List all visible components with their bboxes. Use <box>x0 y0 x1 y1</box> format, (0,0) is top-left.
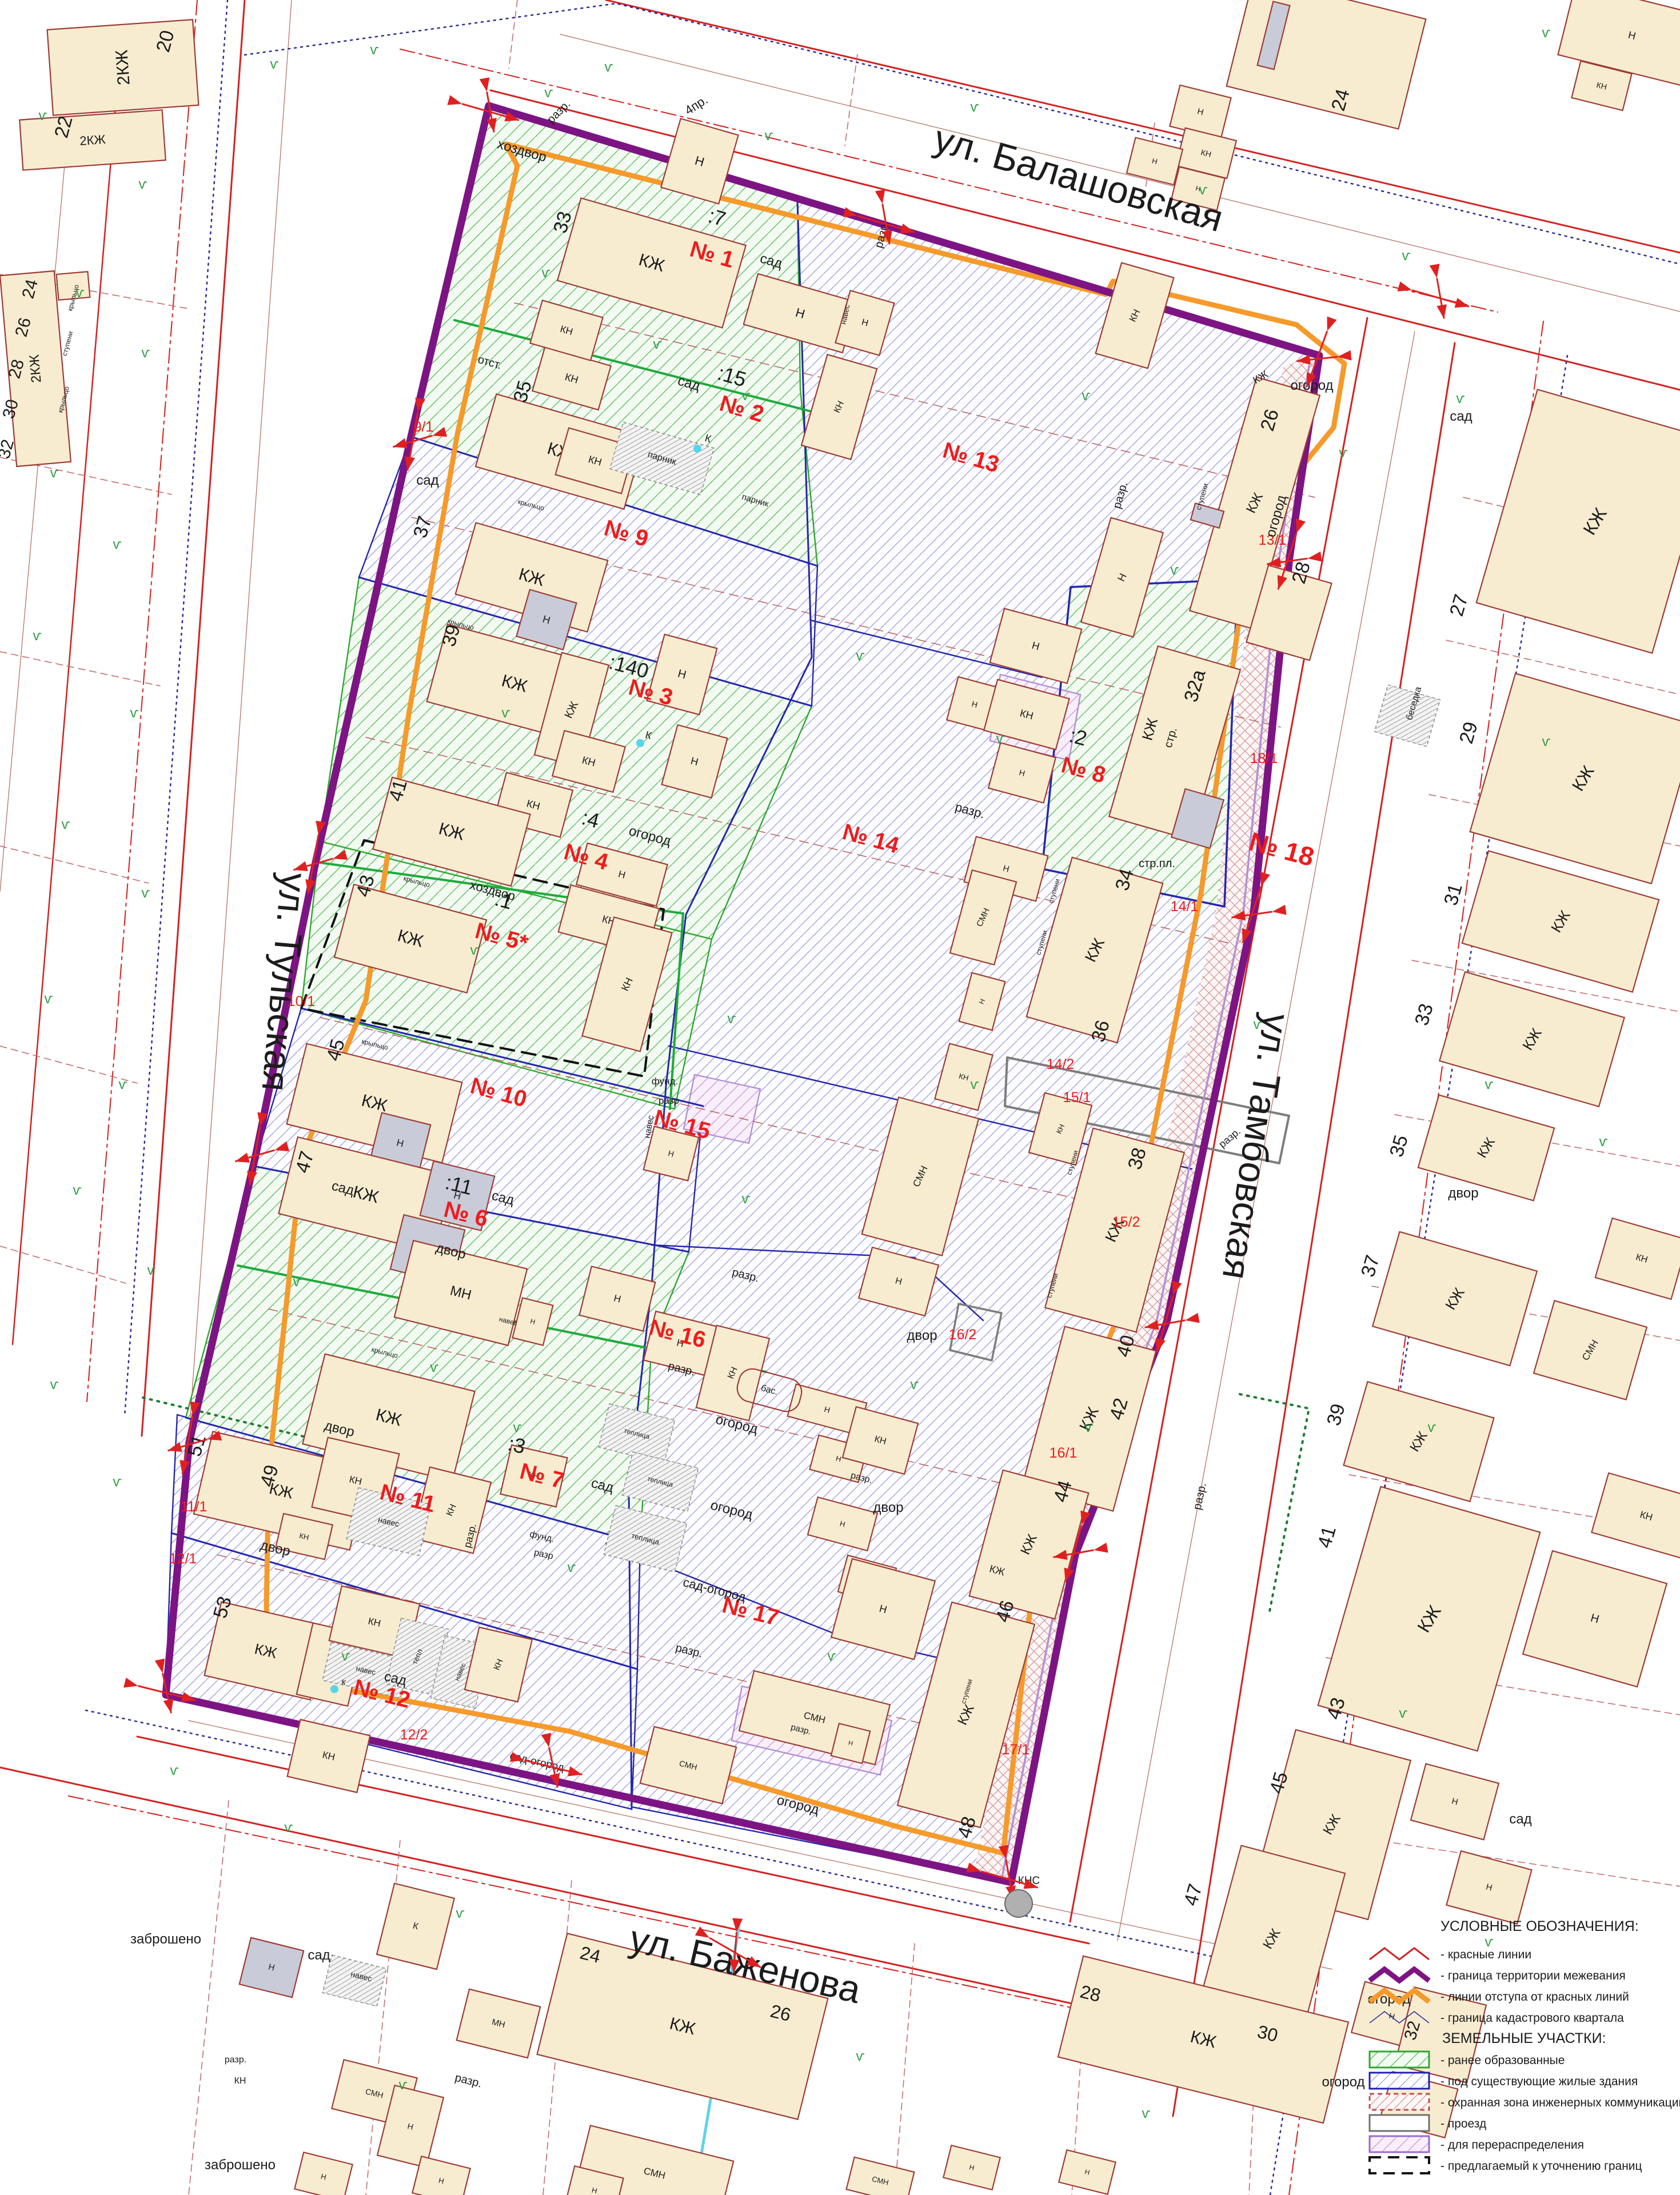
boundary-point: 17/1 <box>1002 1742 1030 1758</box>
boundary-point: 12/1 <box>169 1551 197 1567</box>
legend-item: - предлагаемый к уточнению границ <box>1370 2157 1642 2173</box>
boundary-point: 14/1 <box>1171 899 1199 915</box>
boundary-point: 15/1 <box>1063 1089 1091 1106</box>
well-icon <box>636 739 644 747</box>
tree-icon: ѵ <box>141 885 150 901</box>
legend-label: - для перераспределения <box>1440 2138 1584 2152</box>
boundary-point: 16/1 <box>1049 1445 1078 1461</box>
tree-icon: ѵ <box>856 2049 864 2064</box>
tree-icon: ѵ <box>970 99 979 115</box>
legend-swatch <box>1370 2052 1429 2068</box>
tree-icon: ѵ <box>970 1077 979 1092</box>
tree-icon: ѵ <box>50 1377 58 1392</box>
legend-item: - для перераспределения <box>1370 2136 1584 2152</box>
area-label: сад <box>416 473 438 488</box>
tree-icon: ѵ <box>856 648 864 664</box>
legend-label: - под существующие жилые здания <box>1440 2075 1638 2088</box>
tree-icon: ѵ <box>827 1649 836 1664</box>
tree-icon: ѵ <box>1253 1017 1262 1032</box>
tree-icon: ѵ <box>764 128 773 143</box>
area-label: разр. <box>225 2055 246 2065</box>
legend-label: - линии отступа от красных линий <box>1440 1990 1629 2004</box>
tree-icon: ѵ <box>1542 25 1550 41</box>
legend-swatch <box>1370 2115 1429 2131</box>
tree-icon: ѵ <box>38 108 47 123</box>
area-label: двор <box>1448 1186 1478 1201</box>
legend-item: - под существующие жилые здания <box>1370 2073 1638 2089</box>
area-label: огород <box>1322 2074 1364 2090</box>
tree-icon: ѵ <box>113 537 121 552</box>
tree-icon: ѵ <box>1542 734 1550 749</box>
kns-icon <box>1005 1890 1032 1917</box>
tree-icon: ѵ <box>113 1474 121 1490</box>
tree-icon: ѵ <box>270 57 278 72</box>
tree-icon: ѵ <box>293 1274 301 1290</box>
tree-icon: ѵ <box>130 705 138 721</box>
tree-icon: ѵ <box>44 991 53 1007</box>
building-label: 2КЖ <box>112 49 133 86</box>
tree-icon: ѵ <box>398 2077 407 2093</box>
tree-icon: ѵ <box>1082 388 1090 404</box>
tree-icon: ѵ <box>653 337 661 352</box>
legend-label: - охранная зона инженерных коммуникаций <box>1440 2096 1680 2109</box>
tree-icon: ѵ <box>741 388 750 404</box>
legend-swatch <box>1370 2094 1429 2110</box>
tree-icon: ѵ <box>141 345 150 361</box>
area-label: огород <box>1290 378 1333 393</box>
legend-item: ЗЕМЕЛЬНЫЕ УЧАСТКИ: <box>1442 2030 1606 2046</box>
legend-swatch <box>1370 2073 1429 2089</box>
area-label: заброшено <box>130 1931 201 1947</box>
tree-icon: ѵ <box>61 817 70 832</box>
tree-icon: ѵ <box>1170 562 1179 578</box>
legend-label: - предлагаемый к уточнению границ <box>1440 2160 1642 2173</box>
boundary-point: 11/1 <box>181 1499 207 1515</box>
legend-item: - проезд <box>1370 2115 1486 2131</box>
tree-icon: ѵ <box>604 59 613 75</box>
area-label: сад <box>308 1947 330 1963</box>
area-label: двор <box>873 1500 903 1515</box>
legend-label: ЗЕМЕЛЬНЫЕ УЧАСТКИ: <box>1442 2030 1606 2046</box>
tree-icon: ѵ <box>470 943 478 958</box>
tree-icon: ѵ <box>1339 445 1347 461</box>
tree-icon: ѵ <box>1399 1706 1407 1721</box>
tree-icon: ѵ <box>996 731 1004 747</box>
boundary-point: 18/1 <box>1250 751 1278 767</box>
area-label: сад <box>1509 1811 1531 1827</box>
legend-label: - проезд <box>1440 2117 1486 2130</box>
legend-label: - ранее образованные <box>1440 2054 1565 2067</box>
tree-icon: ѵ <box>1456 391 1464 406</box>
tree-icon: ѵ <box>1199 182 1207 198</box>
tree-icon: ѵ <box>33 628 41 644</box>
tree-icon: ѵ <box>910 1377 919 1392</box>
tree-icon: ѵ <box>727 1011 736 1027</box>
cadastral-map: 2КЖ2КЖ2КЖКЖНННКНКЖКНКНКНпарникКЖНКЖКЖКНН… <box>0 0 1680 2195</box>
legend-swatch <box>1370 2157 1429 2173</box>
boundary-point: 14/2 <box>1047 1056 1075 1072</box>
boundary-point: 12/2 <box>400 1727 428 1743</box>
tree-icon: ѵ <box>341 1649 350 1664</box>
area-label: заброшено <box>205 2157 276 2173</box>
legend-swatch <box>1370 2136 1429 2152</box>
tree-icon: ѵ <box>544 85 553 101</box>
area-label: сад <box>1450 409 1472 424</box>
legend-title: УСЛОВНЫЕ ОБОЗНАЧЕНИЯ: <box>1440 1918 1639 1934</box>
tree-icon: ѵ <box>1599 1134 1607 1150</box>
area-label: стр.пл. <box>1139 857 1175 870</box>
tree-icon: ѵ <box>501 705 510 721</box>
tree-icon: ѵ <box>284 1820 293 1835</box>
area-label: фунд. <box>652 1076 678 1087</box>
well-icon <box>693 445 701 453</box>
building-label: 2КЖ <box>26 354 44 384</box>
tree-icon: ѵ <box>1485 1077 1493 1092</box>
area-label: разр <box>659 1095 679 1106</box>
area-label: двор <box>907 1328 937 1343</box>
tree-icon: ѵ <box>1142 2106 1150 2121</box>
boundary-point: 15/2 <box>1112 1214 1140 1230</box>
tree-icon: ѵ <box>170 1763 178 1778</box>
tree-icon: ѵ <box>430 1360 438 1375</box>
tree-icon: ѵ <box>513 1420 521 1435</box>
tree-icon: ѵ <box>1402 248 1410 264</box>
legend-label: - граница кадастрового квартала <box>1440 2012 1624 2025</box>
legend-item: - ранее образованные <box>1370 2052 1565 2068</box>
tree-icon: ѵ <box>741 1191 750 1207</box>
tree-icon: ѵ <box>456 1906 464 1921</box>
tree-icon: ѵ <box>370 42 378 58</box>
tree-icon: ѵ <box>541 265 550 281</box>
legend-label: - граница территории межевания <box>1440 1969 1626 1982</box>
tree-icon: ѵ <box>1427 1420 1436 1435</box>
tree-icon: ѵ <box>1485 1934 1493 1950</box>
tree-icon: ѵ <box>1084 1420 1093 1435</box>
tree-icon: ѵ <box>147 1263 155 1278</box>
well-icon <box>330 1685 338 1693</box>
tree-icon: ѵ <box>567 1560 576 1575</box>
area-label: КН <box>234 2076 246 2086</box>
tree-icon: ѵ <box>118 1077 127 1092</box>
boundary-point: 10/1 <box>288 993 316 1009</box>
tree-icon: ѵ <box>138 177 147 192</box>
legend-label: - красные линии <box>1440 1948 1531 1961</box>
tree-icon: ѵ <box>75 285 84 301</box>
tree-icon: ѵ <box>73 1183 81 1198</box>
boundary-point: 16/2 <box>949 1327 977 1343</box>
building-label: 2КЖ <box>79 132 106 148</box>
legend-item: - охранная зона инженерных коммуникаций <box>1370 2094 1680 2110</box>
tree-icon: ѵ <box>50 465 58 481</box>
page: 2КЖ2КЖ2КЖКЖНННКНКЖКНКНКНпарникКЖНКЖКЖКНН… <box>0 0 1680 2195</box>
